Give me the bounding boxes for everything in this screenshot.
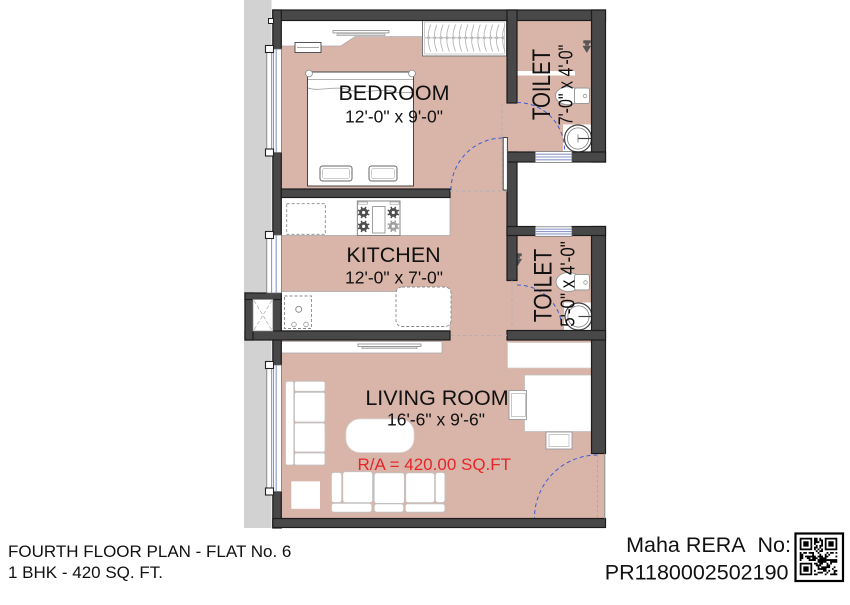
- svg-text:BEDROOM: BEDROOM: [338, 81, 449, 105]
- svg-text:TOILET: TOILET: [529, 249, 557, 323]
- svg-text:1 BHK - 420 SQ. FT.: 1 BHK - 420 SQ. FT.: [8, 563, 163, 582]
- svg-text:16'-6" x 9'-6": 16'-6" x 9'-6": [387, 410, 485, 430]
- svg-text:Maha RERA No:: Maha RERA No:: [626, 533, 791, 557]
- svg-text:R/A = 420.00 SQ.FT: R/A = 420.00 SQ.FT: [358, 455, 512, 474]
- svg-text:KITCHEN: KITCHEN: [346, 243, 440, 267]
- svg-text:5'-0" x 4'-0": 5'-0" x 4'-0": [556, 241, 579, 327]
- svg-text:TOILET: TOILET: [527, 49, 555, 120]
- svg-text:LIVING ROOM: LIVING ROOM: [365, 386, 508, 410]
- svg-text:FOURTH FLOOR PLAN - FLAT No. 6: FOURTH FLOOR PLAN - FLAT No. 6: [8, 542, 291, 561]
- svg-text:12'-0" x 9'-0": 12'-0" x 9'-0": [345, 107, 443, 127]
- svg-text:PR1180002502190: PR1180002502190: [605, 561, 789, 585]
- svg-text:7'-0" x 4'-0": 7'-0" x 4'-0": [555, 45, 577, 126]
- svg-text:12'-0" x 7'-0": 12'-0" x 7'-0": [345, 268, 443, 288]
